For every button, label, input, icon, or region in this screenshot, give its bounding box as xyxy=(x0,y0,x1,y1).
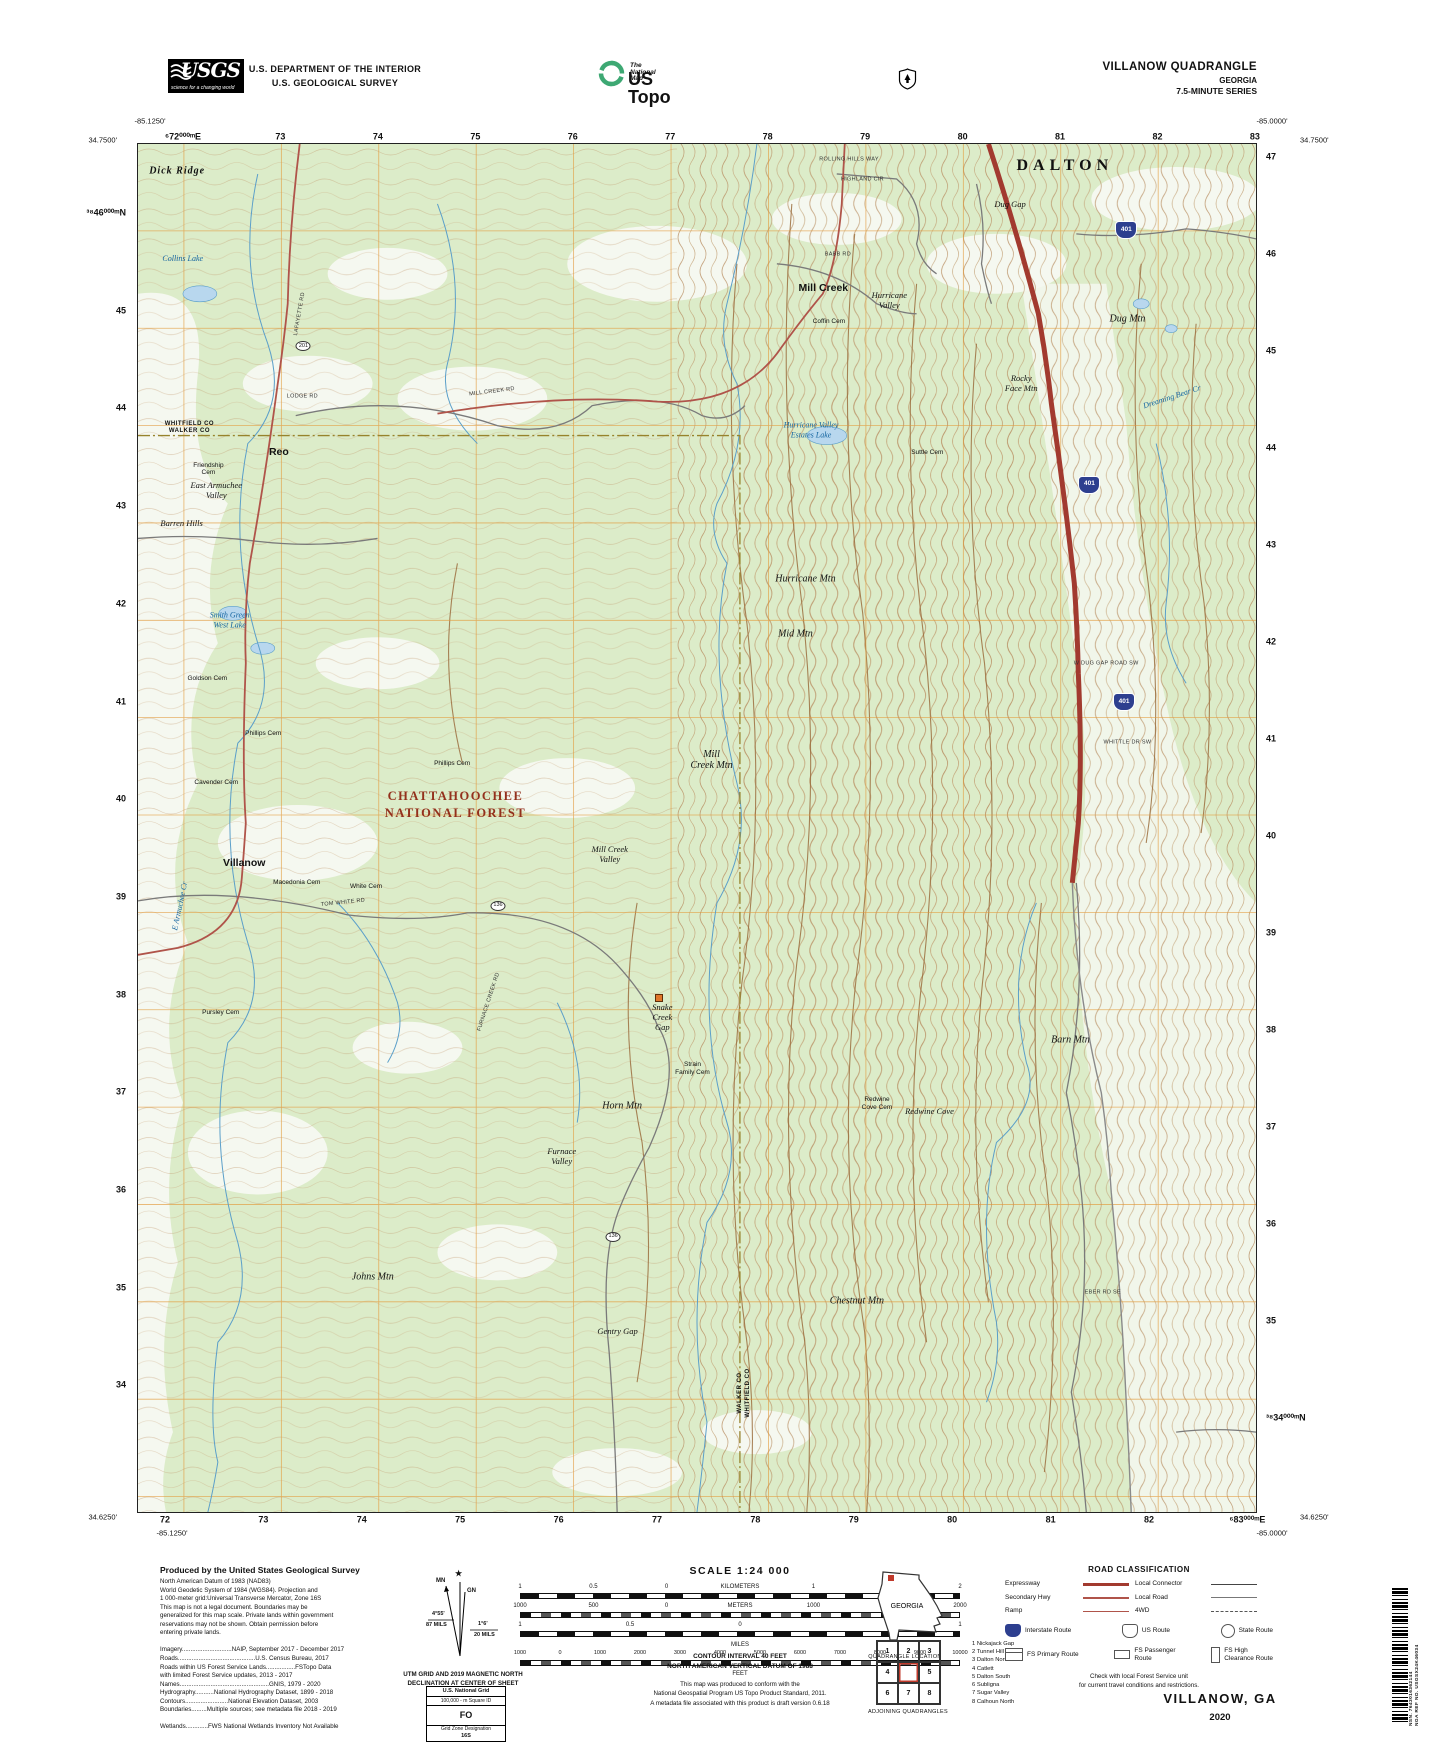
gn-degrees: 1°6' xyxy=(478,1622,488,1628)
map-label: WALKER CO WHITFIELD CO xyxy=(737,1368,753,1417)
ustopo-large-label: US Topo xyxy=(628,70,671,106)
map-label: Phillips Cem xyxy=(245,730,281,738)
ustopo-logo: The National Map US Topo xyxy=(598,60,625,96)
credits-title: Produced by the United States Geological… xyxy=(160,1565,422,1576)
sheet-year: 2020 xyxy=(1130,1713,1310,1723)
fshigh-icon xyxy=(1211,1647,1220,1663)
route-shield-legend: Interstate RouteUS RouteState Route xyxy=(1005,1624,1273,1638)
grid-number-right: 36 xyxy=(1266,1220,1276,1229)
usgs-logo: USGS science for a changing world xyxy=(168,59,244,93)
map-label: Barn Mtn xyxy=(1051,1035,1090,1046)
gn-mils: 20 MILS xyxy=(474,1633,495,1639)
fs-route-label: FS High Clearance Route xyxy=(1224,1647,1273,1663)
grid-number-right: 38 xyxy=(1266,1026,1276,1035)
interstate-shield: 401 xyxy=(1113,693,1135,711)
grid-number-left: ³⁸46⁰⁰⁰ᵐN xyxy=(86,209,126,218)
mn-mils: 87 MILS xyxy=(426,1623,447,1629)
usgs-tagline: science for a changing world xyxy=(171,86,234,91)
grid-number-right: ³⁸34⁰⁰⁰ᵐN xyxy=(1266,1414,1306,1423)
grid-number-top: 77 xyxy=(665,133,675,142)
credits-line: Hydrography...........National Hydrograp… xyxy=(160,1689,422,1698)
fs-route-item: FS Passenger Route xyxy=(1114,1647,1175,1663)
map-label: Phillips Cem xyxy=(434,760,470,768)
grid-number-left: 43 xyxy=(116,502,126,511)
map-label: Coffin Cem xyxy=(813,318,845,326)
adjoining-list-item: 7 Sugar Valley xyxy=(972,1689,1014,1697)
map-label: BABB RD xyxy=(825,252,851,259)
kilometers-tick: 0.5 xyxy=(589,1584,597,1590)
grid-number-right: 43 xyxy=(1266,541,1276,550)
corner-top-right-lat: 34.7500' xyxy=(1300,136,1329,144)
map-label: Barren Hills xyxy=(160,518,202,528)
sheet-name-block: VILLANOW, GA 2020 xyxy=(1130,1692,1310,1723)
fspass-icon xyxy=(1114,1650,1130,1659)
declination-arrows-icon xyxy=(398,1568,528,1668)
roadclass-line-sample xyxy=(1083,1583,1129,1586)
meters-tick: 0 xyxy=(665,1603,668,1609)
credits-line: Boundaries.........Multiple sources; see… xyxy=(160,1706,422,1715)
kilometers-tick: 1 xyxy=(518,1584,521,1590)
corner-top-left-lat: 34.7500' xyxy=(88,136,117,144)
us-shield-icon xyxy=(1122,1624,1138,1638)
route-shield-label: US Route xyxy=(1142,1627,1170,1635)
route-shield-item: Interstate Route xyxy=(1005,1624,1071,1638)
magnetic-north-label: MN xyxy=(436,1578,445,1584)
quad-title-block: VILLANOW QUADRANGLE GEORGIA 7.5-MINUTE S… xyxy=(1102,60,1257,98)
grid-number-bottom: 75 xyxy=(455,1516,465,1525)
adjoining-cell: 4 xyxy=(877,1662,898,1683)
grid-number-top: 74 xyxy=(373,133,383,142)
grid-number-right: 40 xyxy=(1266,832,1276,841)
grid-number-bottom: 72 xyxy=(160,1516,170,1525)
roadclass-label: Expressway xyxy=(1005,1581,1083,1588)
kilometers-tick: 1 xyxy=(812,1584,815,1590)
usng-title: U.S. National Grid xyxy=(427,1687,505,1697)
adjoining-cell: 2 xyxy=(898,1641,919,1662)
department-heading: U.S. DEPARTMENT OF THE INTERIOR U.S. GEO… xyxy=(245,63,425,90)
route-shield-label: Interstate Route xyxy=(1025,1627,1071,1635)
map-label: Furnace Valley xyxy=(547,1146,576,1166)
map-label: Horn Mtn xyxy=(602,1100,642,1111)
map-label: Redwine Cove xyxy=(905,1106,954,1116)
grid-number-right: 37 xyxy=(1266,1123,1276,1132)
map-label: ROLLING HILLS WAY xyxy=(819,157,879,164)
map-label: Dick Ridge xyxy=(149,166,205,177)
grid-number-bottom: 78 xyxy=(750,1516,760,1525)
credits-line: This map is not a legal document. Bounda… xyxy=(160,1604,422,1613)
grid-number-right: 44 xyxy=(1266,444,1276,453)
grid-number-left: 42 xyxy=(116,599,126,608)
production-credits: Produced by the United States Geological… xyxy=(160,1565,422,1732)
corner-bottom-left-lon: -85.1250' xyxy=(156,1529,187,1537)
grid-number-top: 83 xyxy=(1250,133,1260,142)
adjoining-grid: 1234 5678 xyxy=(876,1640,941,1705)
map-label: DALTON xyxy=(1016,157,1113,175)
interstate-shield: 401 xyxy=(1115,221,1137,239)
true-north-star: ★ xyxy=(455,1570,462,1578)
map-label: WHITFIELD CO WALKER CO xyxy=(165,421,214,437)
route-shield-label: State Route xyxy=(1239,1627,1273,1635)
fs-route-item: FS High Clearance Route xyxy=(1211,1647,1273,1663)
grid-number-right: 46 xyxy=(1266,250,1276,259)
fs-route-label: FS Passenger Route xyxy=(1134,1647,1175,1663)
grid-number-right: 47 xyxy=(1266,153,1276,162)
grid-number-right: 35 xyxy=(1266,1317,1276,1326)
map-label: Dreaming Bear Cr xyxy=(1142,383,1202,411)
map-label: Snake Creek Gap xyxy=(652,1002,672,1032)
map-label: HIGHLAND CIR xyxy=(841,176,884,183)
miles-tick: 1 xyxy=(518,1622,521,1628)
road-classification: ROAD CLASSIFICATION ExpresswayLocal Conn… xyxy=(1005,1566,1273,1690)
map-label: Cavender Cem xyxy=(194,779,238,787)
roadclass-label: Ramp xyxy=(1005,1608,1083,1615)
map: Dick RidgeDALTONMill CreekHurricane Vall… xyxy=(137,143,1257,1513)
grid-number-left: 39 xyxy=(116,892,126,901)
map-label: Mid Mtn xyxy=(778,628,813,639)
map-label: Macedonia Cem xyxy=(273,879,320,887)
map-label: East Armuchee Valley xyxy=(190,480,242,500)
grid-number-left: 41 xyxy=(116,697,126,706)
roadclass-line-sample xyxy=(1083,1611,1129,1613)
map-label: Rocky Face Mtn xyxy=(1005,373,1038,393)
us-national-grid-box: U.S. National Grid 100,000 - m Square ID… xyxy=(426,1686,506,1742)
grid-number-bottom: 79 xyxy=(849,1516,859,1525)
forest-service-shield-icon xyxy=(898,68,917,90)
map-label: Friendship Cem xyxy=(193,462,223,478)
map-label: E Armuchee Cr xyxy=(171,881,191,932)
corner-bottom-right-lat: 34.6250' xyxy=(1300,1513,1329,1521)
fs-note-2: for current travel conditions and restri… xyxy=(1005,1681,1273,1690)
interstate-shield-icon xyxy=(1005,1624,1021,1637)
state-route-oval: 201 xyxy=(296,341,311,351)
adjoining-cell: 5 xyxy=(919,1662,940,1683)
national-map-icon xyxy=(598,60,625,87)
map-label: Gentry Gap xyxy=(597,1326,637,1336)
roadclass-label: Secondary Hwy xyxy=(1005,1595,1083,1602)
usng-subtitle: 100,000 - m Square ID xyxy=(427,1697,505,1706)
map-label: Mill Creek Mtn xyxy=(690,749,732,771)
grid-number-top: 80 xyxy=(958,133,968,142)
grid-number-top: 76 xyxy=(568,133,578,142)
adjoining-cell: 7 xyxy=(898,1683,919,1704)
grid-number-top: 78 xyxy=(763,133,773,142)
sheet-name: VILLANOW, GA xyxy=(1130,1692,1310,1705)
quad-title: VILLANOW QUADRANGLE xyxy=(1102,60,1257,75)
road-classification-rows: ExpresswayLocal ConnectorSecondary HwyLo… xyxy=(1005,1581,1273,1615)
credits-line: reservations may not be shown. Obtain pe… xyxy=(160,1621,422,1630)
roadclass-label: Local Road xyxy=(1135,1595,1211,1602)
roadclass-label: Local Connector xyxy=(1135,1581,1211,1588)
fsp-icon xyxy=(1005,1648,1023,1661)
map-label: Reo xyxy=(269,447,289,459)
georgia-outline-icon: GEORGIA xyxy=(857,1566,953,1648)
usgs-topo-sheet: USGS science for a changing world U.S. D… xyxy=(0,0,1445,1746)
grid-number-top: 73 xyxy=(275,133,285,142)
map-label: CHATTAHOOCHEE NATIONAL FOREST xyxy=(385,788,526,822)
adjoining-quadrangles: 1234 5678 xyxy=(876,1640,941,1705)
grid-number-bottom: 76 xyxy=(554,1516,564,1525)
adjoining-cell: 6 xyxy=(877,1683,898,1704)
adjoining-cell: 1 xyxy=(877,1641,898,1662)
grid-number-right: 41 xyxy=(1266,735,1276,744)
map-label: LAFAYETTE RD xyxy=(293,291,307,335)
state-shield-icon xyxy=(1221,1624,1235,1638)
forest-service-route-legend: FS Primary RouteFS Passenger RouteFS Hig… xyxy=(1005,1647,1273,1663)
grid-number-left: 36 xyxy=(116,1186,126,1195)
dept-line1: U.S. DEPARTMENT OF THE INTERIOR xyxy=(245,63,425,77)
corner-bottom-left-lat: 34.6250' xyxy=(88,1513,117,1521)
roadclass-line-sample xyxy=(1211,1584,1257,1585)
grid-number-right: 39 xyxy=(1266,929,1276,938)
adjoining-caption: ADJOINING QUADRANGLES xyxy=(846,1710,970,1716)
grid-number-bottom: 77 xyxy=(652,1516,662,1525)
kilometers-tick: 0 xyxy=(665,1584,668,1590)
roadclass-line-sample xyxy=(1211,1597,1257,1598)
grid-number-left: 45 xyxy=(116,306,126,315)
usng-zone: 16S xyxy=(427,1733,505,1741)
grid-number-bottom: 74 xyxy=(357,1516,367,1525)
corner-top-left-lon: -85.1250' xyxy=(134,117,165,125)
usgs-wordmark: USGS xyxy=(181,60,240,80)
road-classification-title: ROAD CLASSIFICATION xyxy=(1005,1566,1273,1574)
map-label-layer: Dick RidgeDALTONMill CreekHurricane Vall… xyxy=(138,144,1256,1512)
credits-line: North American Datum of 1983 (NAD83) xyxy=(160,1578,422,1587)
map-label: Johns Mtn xyxy=(352,1271,394,1282)
barcode-nga-ref: NGA REF NO. USGSX24K46034 xyxy=(1416,1586,1421,1726)
quad-state: GEORGIA xyxy=(1102,75,1257,86)
map-label xyxy=(655,994,663,1002)
map-label: TOM WHITE RD xyxy=(320,898,365,909)
grid-number-bottom: 81 xyxy=(1046,1516,1056,1525)
miles-tick: 0.5 xyxy=(626,1622,634,1628)
adjoining-list-item: 8 Calhoun North xyxy=(972,1698,1014,1706)
credits-line xyxy=(160,1638,422,1647)
barcode xyxy=(1392,1588,1408,1724)
credits-line: Roads...................................… xyxy=(160,1655,422,1664)
meters-tick: METERS xyxy=(727,1603,752,1609)
adjoining-cell: 3 xyxy=(919,1641,940,1662)
meters-tick: 1000 xyxy=(807,1603,820,1609)
forest-service-note: Check with local Forest Service unit for… xyxy=(1005,1672,1273,1691)
map-label: Chestnut Mtn xyxy=(830,1296,884,1307)
map-label: Dug Gap xyxy=(994,199,1025,209)
map-label: Dug Mtn xyxy=(1110,314,1146,325)
fs-note-1: Check with local Forest Service unit xyxy=(1005,1672,1273,1681)
grid-number-right: 42 xyxy=(1266,638,1276,647)
grid-number-left: 37 xyxy=(116,1088,126,1097)
grid-number-top: 79 xyxy=(860,133,870,142)
quad-location-marker xyxy=(888,1575,894,1581)
grid-number-left: 40 xyxy=(116,795,126,804)
map-label: Redwine Cove Cem xyxy=(862,1097,893,1113)
credits-line: entering private lands. xyxy=(160,1629,422,1638)
credits-line xyxy=(160,1715,422,1724)
map-label: White Cem xyxy=(350,883,382,891)
map-label: Smith Green West Lake xyxy=(210,610,250,629)
roadclass-line-sample xyxy=(1211,1611,1257,1612)
map-label: Goldson Cem xyxy=(187,675,227,683)
kilometers-tick: KILOMETERS xyxy=(721,1584,760,1590)
map-label: Hurricane Valley Estates Lake xyxy=(784,420,839,439)
route-shield-item: US Route xyxy=(1122,1624,1170,1638)
declination-diagram: ★ MN GN 4°55' 87 MILS 1°6' 20 MILS xyxy=(398,1568,528,1668)
credits-line: World Geodetic System of 1984 (WGS84). P… xyxy=(160,1587,422,1596)
state-route-oval: 136 xyxy=(606,1232,621,1242)
miles-tick: 0 xyxy=(738,1622,741,1628)
map-label: Strain Family Cem xyxy=(675,1061,710,1077)
credits-line: Wetlands.............FWS National Wetlan… xyxy=(160,1723,422,1732)
grid-number-top: 75 xyxy=(470,133,480,142)
meters-tick: 1000 xyxy=(513,1603,526,1609)
grid-number-left: 44 xyxy=(116,404,126,413)
usng-zone-label: Grid Zone Designation xyxy=(427,1725,505,1734)
credits-lines: North American Datum of 1983 (NAD83)Worl… xyxy=(160,1578,422,1732)
grid-number-bottom: ⁶83⁰⁰⁰ᵐE xyxy=(1229,1516,1265,1525)
grid-number-bottom: 82 xyxy=(1144,1516,1154,1525)
map-label: Mill Creek xyxy=(799,283,849,295)
grid-number-left: 38 xyxy=(116,990,126,999)
state-route-oval: 136 xyxy=(490,901,505,911)
credits-line: Contours.........................Nationa… xyxy=(160,1698,422,1707)
map-label: MILL CREEK RD xyxy=(469,386,515,398)
grid-number-bottom: 80 xyxy=(947,1516,957,1525)
adjoining-cell: 8 xyxy=(919,1683,940,1704)
map-label: Mill Creek Valley xyxy=(592,844,628,864)
map-label: Villanow xyxy=(223,858,265,870)
map-label: FURNACE CREEK RD xyxy=(476,972,501,1032)
grid-number-left: 34 xyxy=(116,1381,126,1390)
corner-top-right-lon: -85.0000' xyxy=(1256,117,1287,125)
grid-number-bottom: 73 xyxy=(258,1516,268,1525)
adjoining-cell xyxy=(898,1662,919,1683)
grid-number-top: ⁶72⁰⁰⁰ᵐE xyxy=(165,133,201,142)
grid-number-top: 82 xyxy=(1152,133,1162,142)
meters-tick: 500 xyxy=(588,1603,598,1609)
map-label: W DUG GAP ROAD SW xyxy=(1074,661,1139,668)
map-label: Hurricane Valley xyxy=(872,290,907,310)
credits-line: generalized for this map scale. Private … xyxy=(160,1612,422,1621)
grid-number-right: 45 xyxy=(1266,347,1276,356)
quad-series: 7.5-MINUTE SERIES xyxy=(1102,86,1257,98)
route-shield-item: State Route xyxy=(1221,1624,1273,1638)
fs-route-label: FS Primary Route xyxy=(1027,1651,1079,1659)
map-label: EBER RD SE xyxy=(1085,1290,1121,1297)
grid-number-left: 35 xyxy=(116,1283,126,1292)
georgia-state-label: GEORGIA xyxy=(891,1603,924,1610)
credits-line: Imagery.............................NAIP… xyxy=(160,1646,422,1655)
corner-bottom-right-lon: -85.0000' xyxy=(1256,1529,1287,1537)
grid-number-top: 81 xyxy=(1055,133,1065,142)
mn-degrees: 4°55' xyxy=(432,1612,445,1618)
map-label: Suttle Cem xyxy=(911,449,943,457)
map-label: Pursley Cem xyxy=(202,1009,239,1017)
interstate-shield: 401 xyxy=(1078,476,1100,494)
grid-north-label: GN xyxy=(467,1588,476,1594)
credits-line: 1 000-meter grid:Universal Transverse Me… xyxy=(160,1595,422,1604)
roadclass-line-sample xyxy=(1083,1597,1129,1599)
map-label: Hurricane Mtn xyxy=(775,574,835,585)
map-label: Collins Lake xyxy=(162,254,203,264)
roadclass-label: 4WD xyxy=(1135,1608,1211,1615)
usng-square-id: FO xyxy=(427,1706,505,1725)
map-label: LODGE RD xyxy=(287,394,318,401)
dept-line2: U.S. GEOLOGICAL SURVEY xyxy=(245,77,425,91)
fs-route-item: FS Primary Route xyxy=(1005,1647,1079,1663)
map-label: WHITTLE DR SW xyxy=(1103,740,1151,747)
